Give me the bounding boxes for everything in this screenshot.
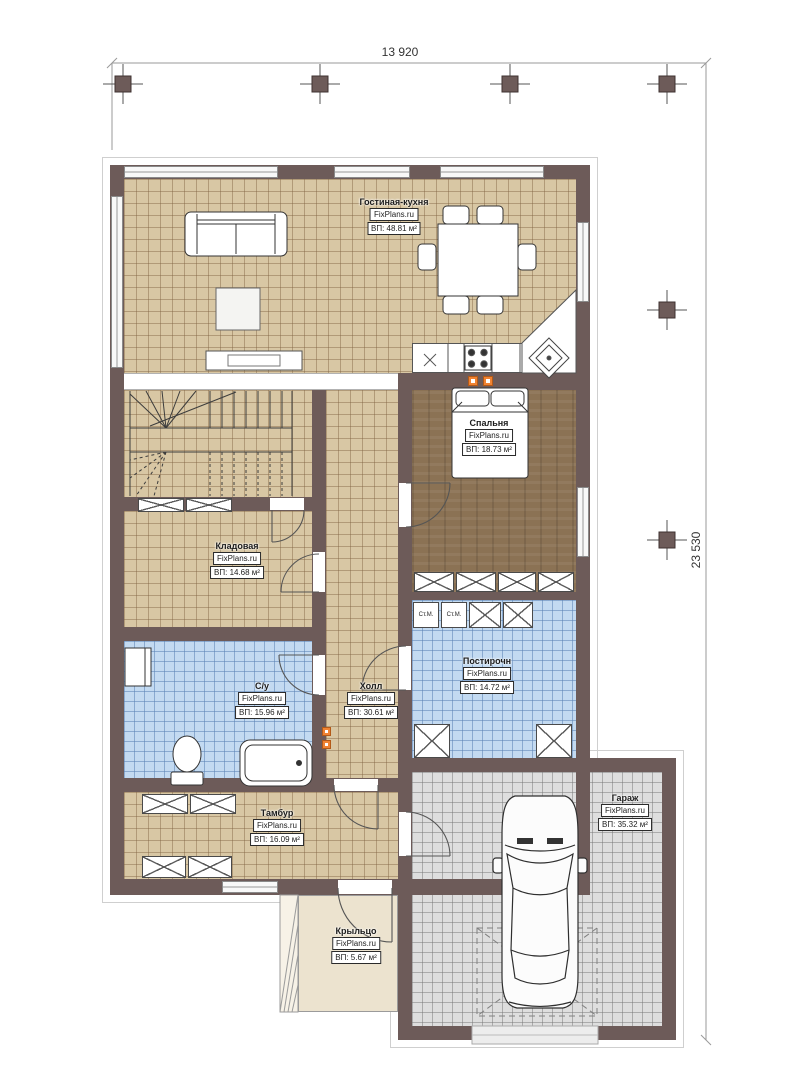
closet-laundry-1 [469, 602, 501, 628]
room-name-storage: Кладовая [210, 541, 264, 551]
label-garage: Гараж FixPlans.ru ВП: 35.32 м² [598, 793, 652, 831]
closet-storage-1 [138, 498, 184, 512]
watermark-bedroom: FixPlans.ru [465, 429, 513, 442]
closet-vestibule-2 [190, 794, 236, 814]
vent-marker-hall-1 [322, 727, 331, 736]
watermark-hall: FixPlans.ru [347, 692, 395, 705]
closet-storage-2 [186, 498, 232, 512]
closet-vestibule-1 [142, 794, 188, 814]
room-name-hall: Холл [344, 681, 398, 691]
wall-bedroom-laundry [412, 592, 576, 600]
washing-machine-2-label: Ст.М. [447, 612, 462, 618]
floor-plan-page: Ст.М. Ст.М. 13 920 23 530 [0, 0, 792, 1080]
watermark-porch: FixPlans.ru [332, 937, 380, 950]
wall-bathroom-vestibule [124, 778, 312, 792]
porch-steps [280, 895, 298, 1012]
closet-bedroom-1 [414, 572, 454, 592]
watermark-storage: FixPlans.ru [213, 552, 261, 565]
kitchen-counter [412, 343, 576, 373]
closet-bedroom-2 [456, 572, 496, 592]
window-right-dining [577, 222, 589, 302]
washing-machine-2: Ст.М. [441, 602, 467, 628]
room-name-bedroom: Спальня [462, 418, 516, 428]
room-area-garage: ВП: 35.32 м² [598, 818, 652, 831]
closet-bedroom-3 [498, 572, 536, 592]
room-area-bathroom: ВП: 15.96 м² [235, 706, 289, 719]
door-gap-hall-vestibule [334, 779, 378, 791]
floor-hall [326, 390, 398, 778]
closet-vestibule-4 [188, 856, 232, 878]
door-gap-garage-side [399, 812, 411, 856]
wall-hall-rightzone [398, 390, 412, 758]
wall-garage-bottom [398, 1026, 676, 1040]
room-area-storage: ВП: 14.68 м² [210, 566, 264, 579]
window-bottom [222, 881, 278, 893]
room-name-bathroom: С/у [235, 681, 289, 691]
closet-bedroom-4 [538, 572, 574, 592]
window-top-3 [440, 166, 544, 178]
closet-laundry-3 [414, 724, 450, 758]
label-living-kitchen: Гостиная-кухня FixPlans.ru ВП: 48.81 м² [360, 197, 429, 235]
label-hall: Холл FixPlans.ru ВП: 30.61 м² [344, 681, 398, 719]
label-laundry: Постирочн FixPlans.ru ВП: 14.72 м² [460, 656, 514, 694]
room-area-laundry: ВП: 14.72 м² [460, 681, 514, 694]
label-porch: Крыльцо FixPlans.ru ВП: 5.67 м² [331, 926, 381, 964]
window-top-1 [124, 166, 278, 178]
wall-storage-bathroom [124, 627, 312, 641]
room-area-bedroom: ВП: 18.73 м² [462, 443, 516, 456]
door-gap-stairs-storage [270, 498, 304, 510]
closet-laundry-4 [536, 724, 572, 758]
window-left [111, 196, 123, 368]
vent-marker-kitchen-2 [483, 376, 493, 386]
floor-staircase [124, 390, 312, 497]
room-name-laundry: Постирочн [460, 656, 514, 666]
room-area-hall: ВП: 30.61 м² [344, 706, 398, 719]
room-area-vestibule: ВП: 16.09 м² [250, 833, 304, 846]
watermark-living-kitchen: FixPlans.ru [370, 208, 418, 221]
washing-machine-1-label: Ст.М. [419, 612, 434, 618]
room-name-vestibule: Тамбур [250, 808, 304, 818]
label-vestibule: Тамбур FixPlans.ru ВП: 16.09 м² [250, 808, 304, 846]
dimension-width-label: 13 920 [382, 45, 419, 59]
room-name-porch: Крыльцо [331, 926, 381, 936]
vent-marker-hall-2 [322, 740, 331, 749]
room-area-living-kitchen: ВП: 48.81 м² [367, 222, 421, 235]
window-top-2 [334, 166, 410, 178]
dimension-height-label: 23 530 [689, 531, 703, 568]
watermark-garage: FixPlans.ru [601, 804, 649, 817]
wall-living-bedroom [398, 373, 590, 390]
closet-vestibule-3 [142, 856, 186, 878]
label-storage: Кладовая FixPlans.ru ВП: 14.68 м² [210, 541, 264, 579]
door-gap-laundry [399, 646, 411, 690]
washing-machine-1: Ст.М. [413, 602, 439, 628]
wall-garage-top [398, 758, 676, 772]
closet-laundry-2 [503, 602, 533, 628]
window-right-bedroom [577, 487, 589, 557]
watermark-bathroom: FixPlans.ru [238, 692, 286, 705]
label-bedroom: Спальня FixPlans.ru ВП: 18.73 м² [462, 418, 516, 456]
opening-living-hall [124, 373, 398, 390]
room-area-porch: ВП: 5.67 м² [331, 951, 381, 964]
room-name-living-kitchen: Гостиная-кухня [360, 197, 429, 207]
door-gap-bathroom [313, 655, 325, 695]
door-gap-bedroom [399, 483, 411, 527]
door-gap-storage [313, 552, 325, 592]
room-name-garage: Гараж [598, 793, 652, 803]
vent-marker-kitchen-1 [468, 376, 478, 386]
watermark-laundry: FixPlans.ru [463, 667, 511, 680]
label-bathroom: С/у FixPlans.ru ВП: 15.96 м² [235, 681, 289, 719]
door-gap-porch [338, 880, 392, 894]
watermark-vestibule: FixPlans.ru [253, 819, 301, 832]
wall-garage-right [662, 758, 676, 1040]
